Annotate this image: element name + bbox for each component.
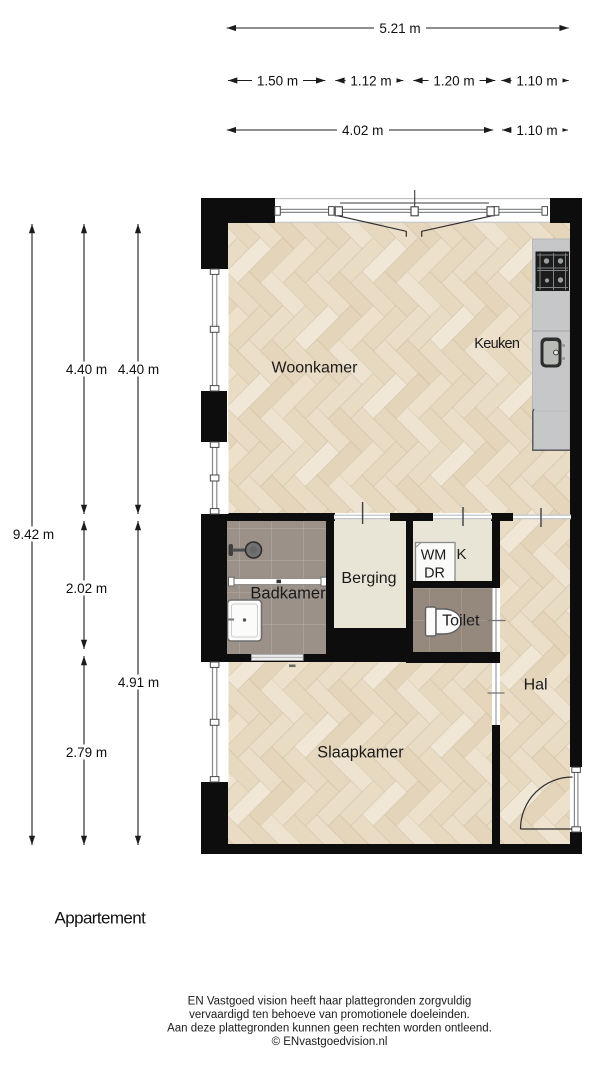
svg-text:Woonkamer: Woonkamer <box>272 360 359 377</box>
svg-text:1.10 m: 1.10 m <box>516 123 557 138</box>
svg-text:Keuken: Keuken <box>474 336 520 352</box>
svg-text:EN Vastgoed vision heeft haar: EN Vastgoed vision heeft haar plattegron… <box>188 996 472 1008</box>
svg-text:vervaardigd ten behoeve van pr: vervaardigd ten behoeve van promotionele… <box>189 1009 470 1021</box>
svg-text:K: K <box>456 546 466 563</box>
svg-text:Appartement: Appartement <box>55 909 147 928</box>
svg-text:4.91 m: 4.91 m <box>118 675 159 690</box>
svg-text:1.50 m: 1.50 m <box>257 74 298 89</box>
svg-text:5.21 m: 5.21 m <box>379 21 420 36</box>
svg-text:1.12 m: 1.12 m <box>350 74 391 89</box>
svg-text:1.20 m: 1.20 m <box>433 74 474 89</box>
svg-text:DR: DR <box>424 566 445 582</box>
svg-text:Hal: Hal <box>524 677 548 694</box>
svg-text:WM: WM <box>421 548 447 564</box>
svg-text:4.40 m: 4.40 m <box>118 362 159 377</box>
svg-text:Aan deze plattegronden kunnen: Aan deze plattegronden kunnen geen recht… <box>167 1023 492 1035</box>
svg-text:4.02 m: 4.02 m <box>342 123 383 138</box>
svg-text:2.79 m: 2.79 m <box>66 745 107 760</box>
svg-text:Slaapkamer: Slaapkamer <box>317 744 404 762</box>
svg-text:9.42 m: 9.42 m <box>13 527 54 542</box>
svg-text:1.10 m: 1.10 m <box>516 74 557 89</box>
svg-text:© ENvastgoedvision.nl: © ENvastgoedvision.nl <box>272 1036 388 1048</box>
svg-text:4.40 m: 4.40 m <box>66 362 107 377</box>
svg-text:2.02 m: 2.02 m <box>66 581 107 596</box>
svg-text:Berging: Berging <box>341 570 396 587</box>
svg-text:Toilet: Toilet <box>442 613 480 630</box>
svg-text:Badkamer: Badkamer <box>250 584 326 602</box>
